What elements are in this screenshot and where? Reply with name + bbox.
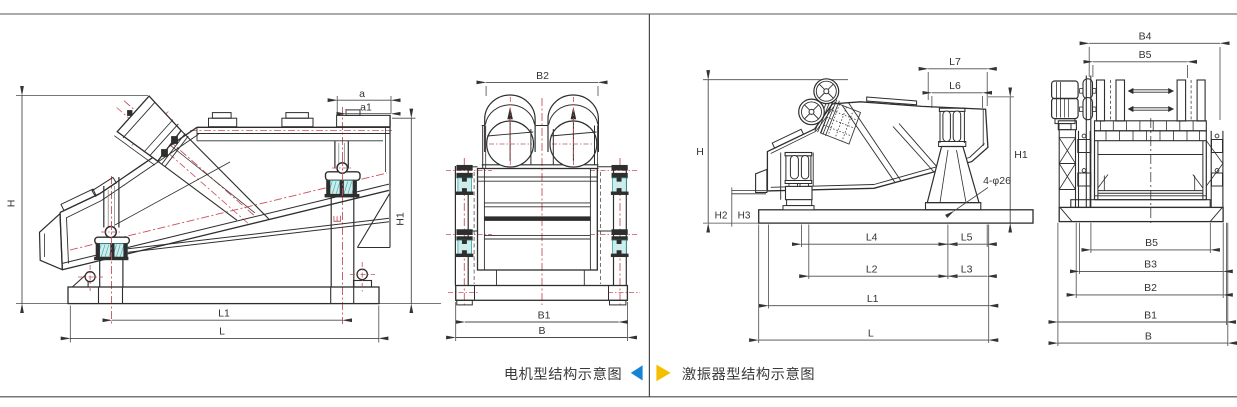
- svg-text:B4: B4: [1139, 31, 1152, 43]
- svg-text:激振器型结构示意图: 激振器型结构示意图: [682, 365, 815, 383]
- svg-text:B1: B1: [1144, 309, 1157, 321]
- svg-text:H: H: [696, 146, 704, 158]
- svg-text:H: H: [6, 200, 18, 208]
- svg-text:B2: B2: [1144, 282, 1157, 294]
- svg-text:L1: L1: [218, 308, 230, 320]
- svg-text:B5: B5: [1139, 49, 1152, 61]
- svg-text:L6: L6: [949, 80, 961, 92]
- svg-text:H1: H1: [395, 212, 407, 226]
- svg-text:4-φ26: 4-φ26: [983, 175, 1011, 187]
- svg-text:a1: a1: [360, 102, 372, 114]
- svg-text:B: B: [538, 325, 545, 337]
- svg-text:L3: L3: [961, 264, 973, 276]
- svg-text:L1: L1: [867, 293, 879, 305]
- svg-text:a: a: [359, 88, 365, 100]
- svg-text:L: L: [219, 326, 225, 338]
- svg-text:H2: H2: [715, 211, 728, 222]
- svg-text:E: E: [332, 215, 344, 222]
- svg-text:B: B: [1145, 330, 1152, 342]
- svg-text:电机型结构示意图: 电机型结构示意图: [504, 365, 622, 383]
- svg-text:L2: L2: [866, 264, 878, 276]
- svg-text:L5: L5: [961, 232, 973, 244]
- svg-text:L4: L4: [866, 232, 878, 244]
- svg-text:B5: B5: [1145, 237, 1158, 249]
- svg-text:L7: L7: [949, 56, 961, 68]
- svg-text:L: L: [868, 327, 874, 339]
- svg-text:B3: B3: [1144, 259, 1157, 271]
- svg-text:B2: B2: [536, 70, 549, 82]
- svg-text:H3: H3: [738, 211, 751, 222]
- svg-text:B1: B1: [538, 310, 551, 322]
- svg-text:H1: H1: [1014, 149, 1028, 161]
